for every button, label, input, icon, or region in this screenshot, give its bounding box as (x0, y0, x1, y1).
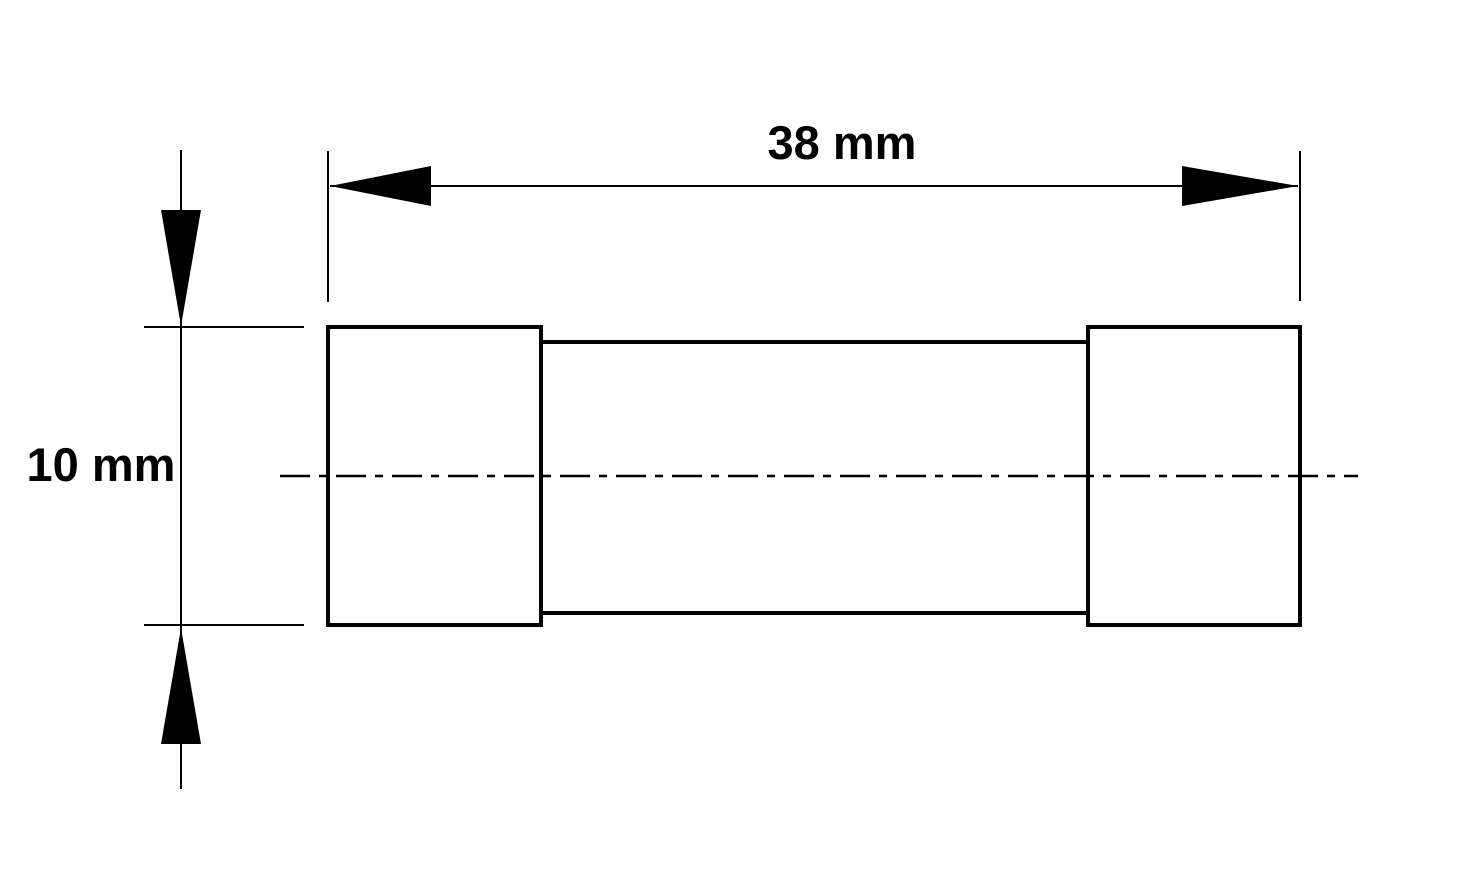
fuse-body (541, 342, 1088, 613)
diameter-dimension-label: 10 mm (27, 438, 176, 491)
fuse-outline (280, 327, 1358, 625)
arrow-up-icon (161, 628, 201, 744)
arrow-down-icon (161, 210, 201, 326)
drawing-canvas: 38 mm 10 mm (0, 0, 1463, 875)
diameter-dimension: 10 mm (27, 150, 304, 789)
arrow-left-icon (330, 166, 431, 206)
fuse-dimension-drawing: 38 mm 10 mm (0, 0, 1463, 875)
length-dimension-label: 38 mm (768, 116, 917, 169)
arrow-right-icon (1182, 166, 1298, 206)
length-dimension: 38 mm (328, 116, 1300, 302)
